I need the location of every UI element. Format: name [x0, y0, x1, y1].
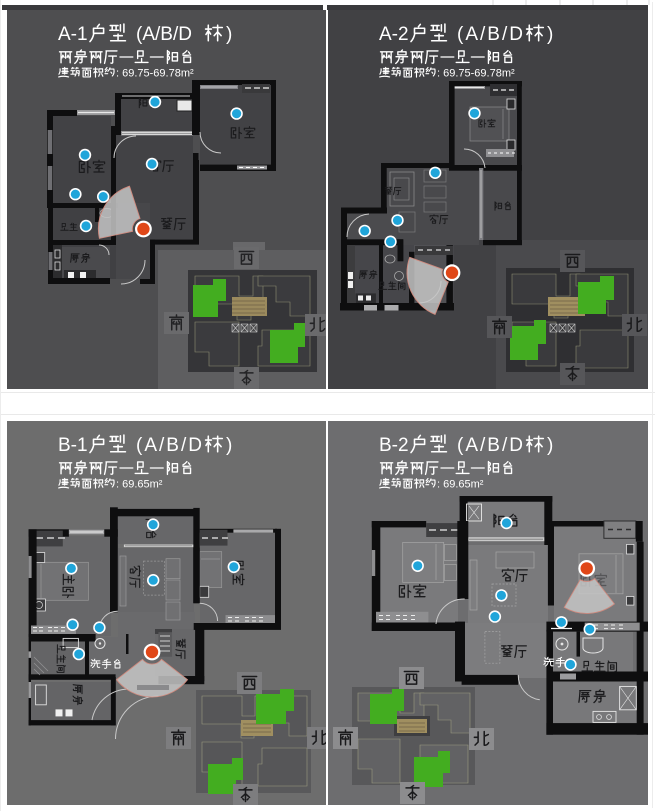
- svg-text:A-2: A-2: [379, 24, 409, 45]
- svg-text:A-1: A-1: [58, 24, 88, 45]
- svg-text:): ): [226, 435, 232, 456]
- svg-text:(A/B/D: (A/B/D: [136, 435, 204, 456]
- svg-text:B-1: B-1: [58, 435, 88, 456]
- svg-text:: 69.75-69.78m²: : 69.75-69.78m²: [437, 68, 515, 80]
- svg-text:: 69.65m²: : 69.65m²: [116, 479, 163, 491]
- svg-text:): ): [547, 24, 553, 45]
- svg-text:(A/B/D: (A/B/D: [136, 24, 192, 45]
- svg-text:: 69.65m²: : 69.65m²: [437, 479, 484, 491]
- svg-text:(A/B/D: (A/B/D: [457, 435, 525, 456]
- svg-text:): ): [547, 435, 553, 456]
- svg-text:B-2: B-2: [379, 435, 409, 456]
- svg-text:): ): [226, 24, 232, 45]
- svg-text:: 69.75-69.78m²: : 69.75-69.78m²: [116, 68, 194, 80]
- svg-text:(A/B/D: (A/B/D: [457, 24, 525, 45]
